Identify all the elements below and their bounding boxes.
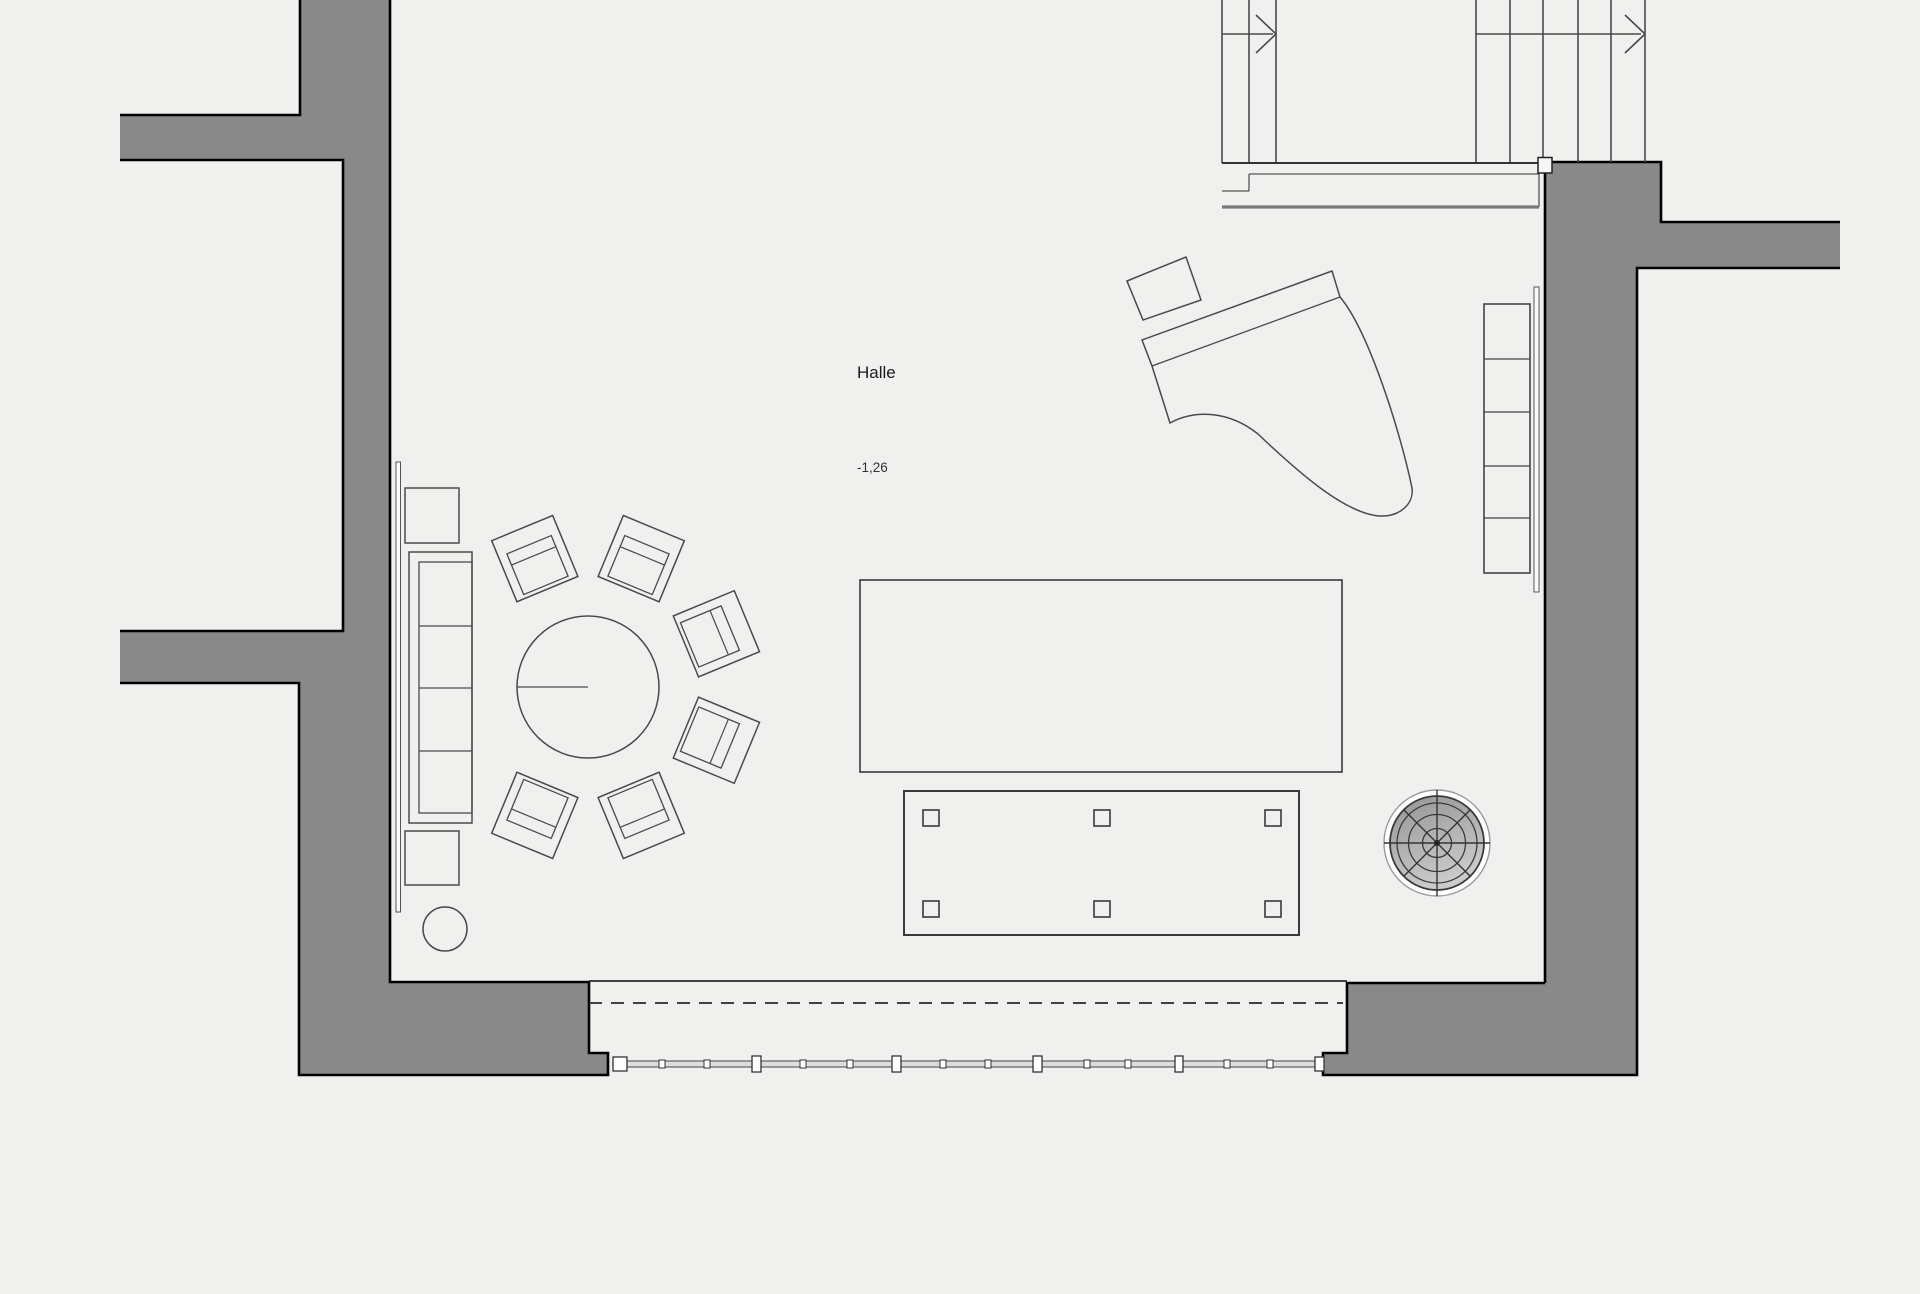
- table-leg: [1094, 810, 1110, 826]
- landing-corner-post: [1538, 158, 1552, 174]
- window-end-post-left: [613, 1057, 627, 1071]
- shelf: [1484, 304, 1530, 573]
- window-end-post-right: [1315, 1057, 1324, 1071]
- table-leg: [1265, 810, 1281, 826]
- stool-circle: [423, 907, 467, 951]
- window-glazing: [627, 1061, 1315, 1067]
- side-table-top: [405, 488, 459, 543]
- table-leg: [1265, 901, 1281, 917]
- room-label: Halle: [857, 363, 896, 382]
- shelf-group: [1484, 287, 1539, 592]
- sofa: [409, 552, 472, 823]
- side-table-bottom: [405, 831, 459, 885]
- floor-plan: Halle -1,26: [0, 0, 1920, 1294]
- room-elevation-label: -1,26: [857, 460, 888, 475]
- table-leg: [923, 810, 939, 826]
- fan-hub: [1434, 840, 1440, 846]
- table-with-legs: [904, 791, 1299, 935]
- table-leg: [1094, 901, 1110, 917]
- table-leg: [923, 901, 939, 917]
- wall-panel-strip-right: [1534, 287, 1539, 592]
- floor-plan-canvas: Halle -1,26: [0, 0, 1920, 1294]
- round-fan: [1384, 790, 1490, 896]
- wall-panel-strip-left: [396, 462, 401, 912]
